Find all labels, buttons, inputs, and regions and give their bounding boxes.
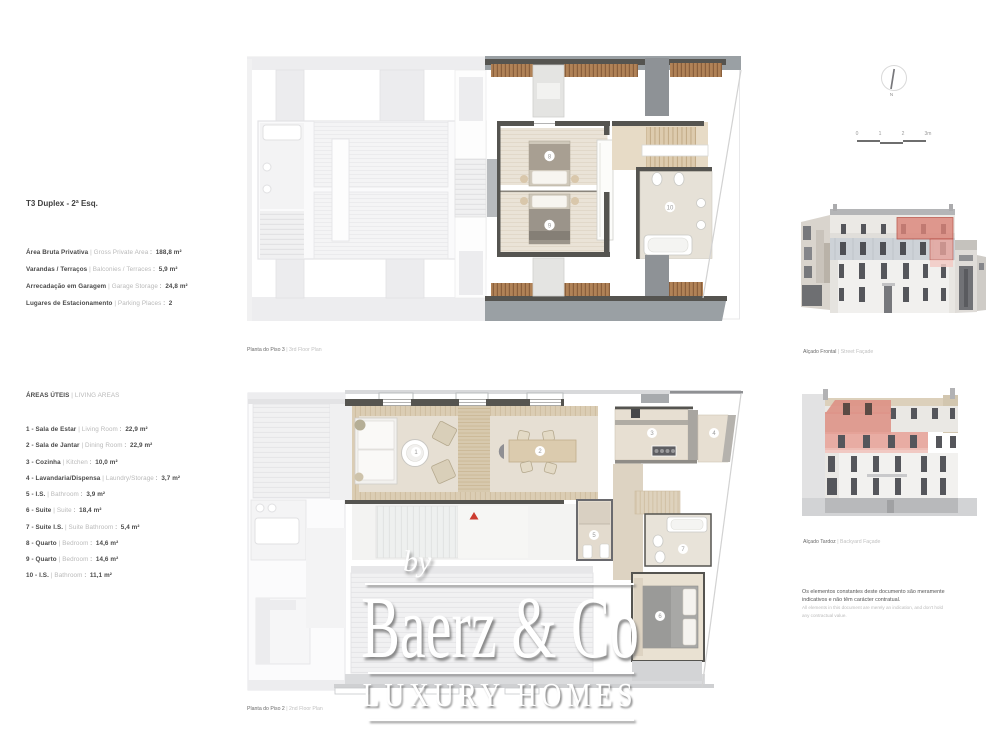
svg-text:10: 10 bbox=[667, 205, 674, 211]
svg-text:2: 2 bbox=[902, 131, 905, 137]
svg-text:N: N bbox=[890, 92, 893, 97]
svg-text:3m: 3m bbox=[925, 131, 932, 137]
svg-text:0: 0 bbox=[856, 131, 859, 137]
svg-text:1: 1 bbox=[879, 131, 882, 137]
